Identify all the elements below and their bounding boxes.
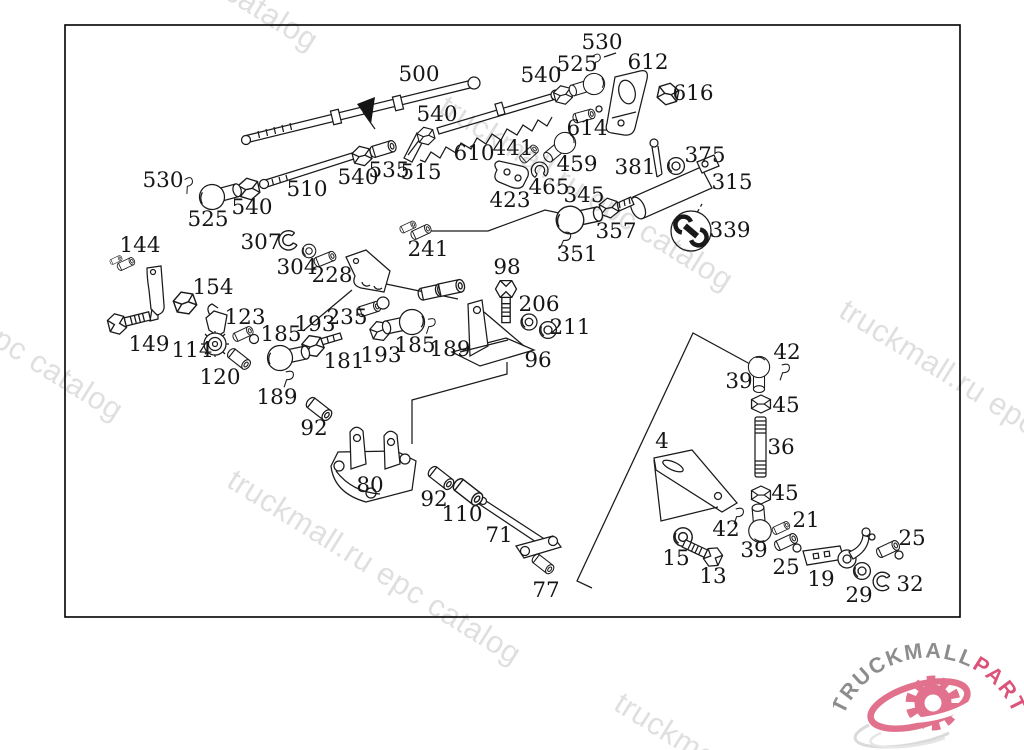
part-label-540-left[interactable]: 540 xyxy=(231,195,272,220)
part-label-120[interactable]: 120 xyxy=(199,365,240,390)
part-label-441[interactable]: 441 xyxy=(492,136,533,161)
part-label-500[interactable]: 500 xyxy=(398,62,439,87)
part-144-lever xyxy=(109,255,164,321)
part-label-98[interactable]: 98 xyxy=(493,255,520,280)
part-123-tip xyxy=(250,335,259,344)
part-98-bolt xyxy=(496,281,517,323)
part-label-39-d[interactable]: 39 xyxy=(740,538,767,563)
part-label-110[interactable]: 110 xyxy=(441,502,482,527)
part-530-left-clip xyxy=(183,177,195,194)
part-label-530-left[interactable]: 530 xyxy=(142,168,183,193)
part-label-206[interactable]: 206 xyxy=(518,292,559,317)
part-label-616[interactable]: 616 xyxy=(672,81,713,106)
part-label-96[interactable]: 96 xyxy=(524,348,551,373)
part-label-540-top[interactable]: 540 xyxy=(520,63,561,88)
leader-96-to-80 xyxy=(412,362,507,444)
part-228-bracket xyxy=(346,250,390,292)
part-label-540-mid[interactable]: 540 xyxy=(416,102,457,127)
part-612-bracket xyxy=(606,71,647,135)
part-label-80[interactable]: 80 xyxy=(356,473,383,498)
part-label-510[interactable]: 510 xyxy=(286,177,327,202)
part-307-clip xyxy=(279,231,297,250)
part-339-wrench-icon xyxy=(671,211,711,251)
part-label-525-top[interactable]: 525 xyxy=(556,52,597,77)
parts-diagram-canvas: 5005305255406126166145406104414594654233… xyxy=(0,0,1024,750)
part-label-77[interactable]: 77 xyxy=(532,578,559,603)
part-19-lever xyxy=(803,528,875,568)
part-36-stud xyxy=(755,417,766,477)
part-label-144[interactable]: 144 xyxy=(119,233,160,258)
part-label-423[interactable]: 423 xyxy=(489,188,530,213)
part-label-211[interactable]: 211 xyxy=(549,315,590,340)
part-label-92-u[interactable]: 92 xyxy=(300,416,327,441)
part-label-307[interactable]: 307 xyxy=(240,230,281,255)
part-label-228[interactable]: 228 xyxy=(311,263,352,288)
part-375-grommet xyxy=(668,158,685,175)
part-21-nut xyxy=(771,521,791,536)
part-label-45-u[interactable]: 45 xyxy=(772,393,799,418)
part-label-36[interactable]: 36 xyxy=(767,435,794,460)
part-label-612[interactable]: 612 xyxy=(627,50,668,75)
part-label-114[interactable]: 114 xyxy=(171,338,212,363)
part-label-189-r[interactable]: 189 xyxy=(429,337,470,362)
part-label-4[interactable]: 4 xyxy=(655,429,669,454)
part-535-sleeve xyxy=(369,140,398,159)
part-label-45-d[interactable]: 45 xyxy=(771,481,798,506)
part-25-right-tip xyxy=(895,551,903,559)
part-4-bracket xyxy=(654,450,737,521)
part-label-459[interactable]: 459 xyxy=(556,152,597,177)
part-29-washer xyxy=(854,563,871,580)
part-label-525-left[interactable]: 525 xyxy=(187,207,228,232)
part-label-71[interactable]: 71 xyxy=(485,523,512,548)
part-label-149[interactable]: 149 xyxy=(128,332,169,357)
part-32-clip xyxy=(871,570,893,592)
part-label-25-m[interactable]: 25 xyxy=(772,555,799,580)
part-label-351[interactable]: 351 xyxy=(556,242,597,267)
part-label-123[interactable]: 123 xyxy=(224,305,265,330)
part-45-lower-nut xyxy=(752,486,771,504)
part-label-39-u[interactable]: 39 xyxy=(725,369,752,394)
part-label-181[interactable]: 181 xyxy=(323,349,364,374)
part-label-42-d[interactable]: 42 xyxy=(712,517,739,542)
part-label-614[interactable]: 614 xyxy=(566,116,607,141)
part-label-235[interactable]: 235 xyxy=(326,305,367,330)
part-label-339[interactable]: 339 xyxy=(709,218,750,243)
part-label-15[interactable]: 15 xyxy=(662,546,689,571)
part-label-13[interactable]: 13 xyxy=(699,564,726,589)
part-label-381[interactable]: 381 xyxy=(614,155,655,180)
part-235-head xyxy=(377,297,389,309)
part-label-610[interactable]: 610 xyxy=(453,141,494,166)
part-42-upper-clip xyxy=(780,364,789,380)
part-label-241[interactable]: 241 xyxy=(407,237,448,262)
part-label-189-l[interactable]: 189 xyxy=(256,385,297,410)
leader-241 xyxy=(425,210,559,231)
part-189-right-clip xyxy=(426,319,435,334)
part-label-357[interactable]: 357 xyxy=(595,219,636,244)
part-45-upper-nut xyxy=(752,395,771,413)
part-423-bracket xyxy=(495,161,528,188)
part-label-25-r[interactable]: 25 xyxy=(898,526,925,551)
truckmallparts-logo: TRUCKMALLPARTS xyxy=(833,643,1024,750)
part-label-315[interactable]: 315 xyxy=(711,170,752,195)
part-77-stud xyxy=(530,553,555,576)
part-label-515[interactable]: 515 xyxy=(400,160,441,185)
part-label-32[interactable]: 32 xyxy=(896,572,923,597)
part-label-154[interactable]: 154 xyxy=(192,275,233,300)
part-25-mid-tip xyxy=(793,544,801,552)
part-label-21[interactable]: 21 xyxy=(792,508,819,533)
part-label-29[interactable]: 29 xyxy=(845,583,872,608)
part-label-42-u[interactable]: 42 xyxy=(773,340,800,365)
part-label-375[interactable]: 375 xyxy=(684,143,725,168)
part-614-eye xyxy=(596,106,602,112)
page: 5005305255406126166145406104414594654233… xyxy=(0,0,1024,750)
part-label-345[interactable]: 345 xyxy=(563,183,604,208)
logo-gear-hole xyxy=(925,695,942,712)
part-label-19[interactable]: 19 xyxy=(807,567,834,592)
